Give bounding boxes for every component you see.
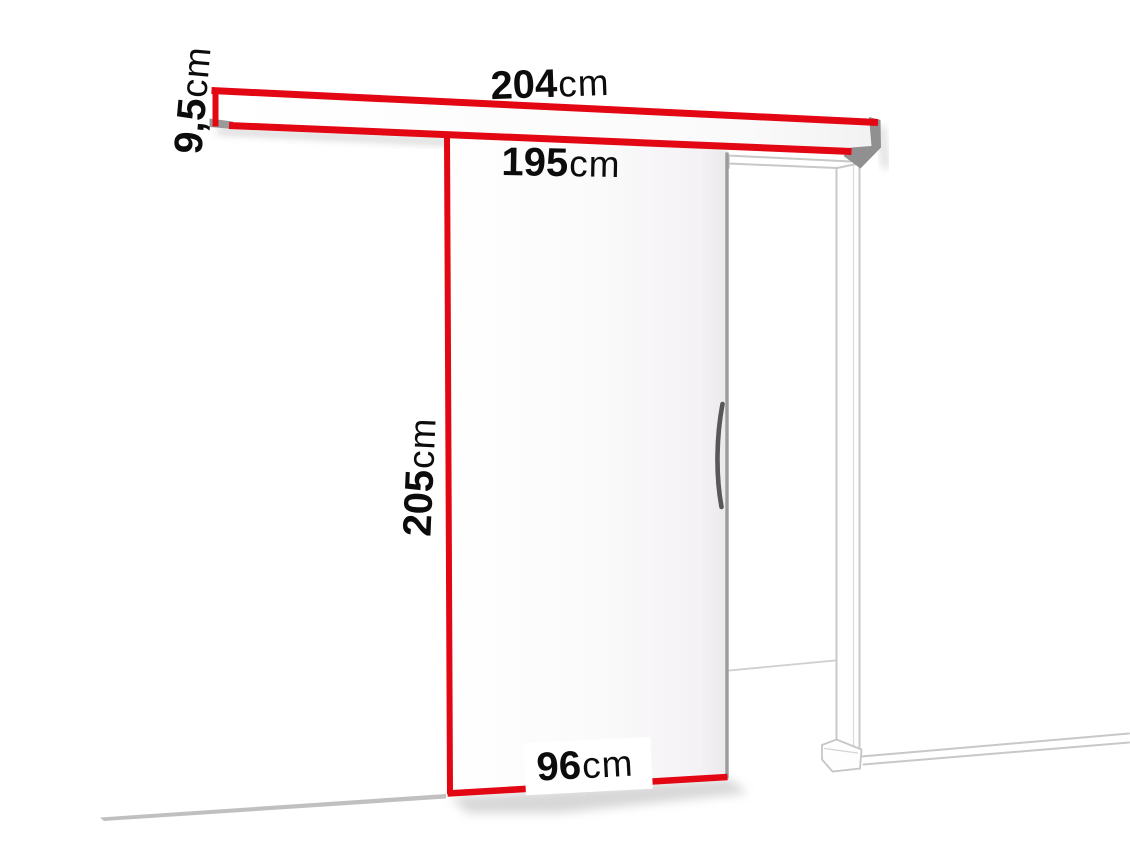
frame-lintel-bottom-line xyxy=(728,164,837,169)
diagram-stage: 204cm 9,5cm 195cm 205cm 96cm xyxy=(0,0,1130,847)
rail-width-unit: cm xyxy=(558,62,611,105)
door-panel xyxy=(444,136,728,797)
rail-height-unit: cm xyxy=(173,44,218,99)
rail-height-label: 9,5cm xyxy=(168,44,217,155)
rail-width-value: 204 xyxy=(490,62,558,108)
frame-baseboard-block xyxy=(822,740,862,772)
door-panel-group xyxy=(444,136,728,797)
floor-line-left xyxy=(100,794,446,821)
door-width-label: 96cm xyxy=(523,737,652,796)
door-width-value: 96 xyxy=(535,743,582,789)
frame-lintel-top-line xyxy=(728,156,851,162)
opening-height-value: 195 xyxy=(501,140,569,185)
rail-cap-shadow xyxy=(881,126,886,168)
opening-height-label: 195cm xyxy=(501,142,621,184)
opening-height-unit: cm xyxy=(569,143,621,185)
door-left-edge-red xyxy=(447,136,450,795)
doorway-floor-line xyxy=(729,661,835,671)
rail-width-label: 204cm xyxy=(490,62,610,106)
door-height-unit: cm xyxy=(400,417,443,470)
rail-height-value: 9,5 xyxy=(166,96,215,155)
door-width-unit: cm xyxy=(581,743,634,787)
door-frame-group xyxy=(728,156,1129,772)
door-height-value: 205 xyxy=(395,469,442,538)
door-height-label: 205cm xyxy=(397,417,442,538)
